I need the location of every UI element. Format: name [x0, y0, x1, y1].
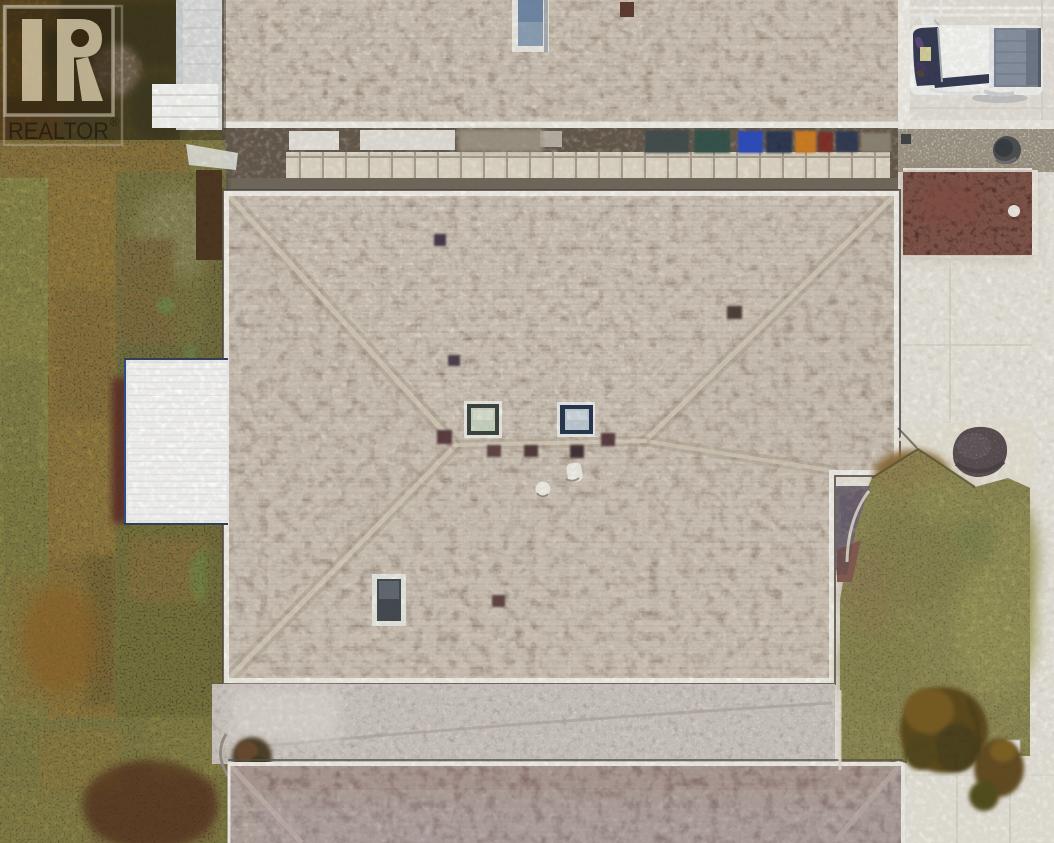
svg-text:REALTOR: REALTOR — [8, 118, 109, 145]
svg-text:®: ® — [110, 115, 119, 129]
